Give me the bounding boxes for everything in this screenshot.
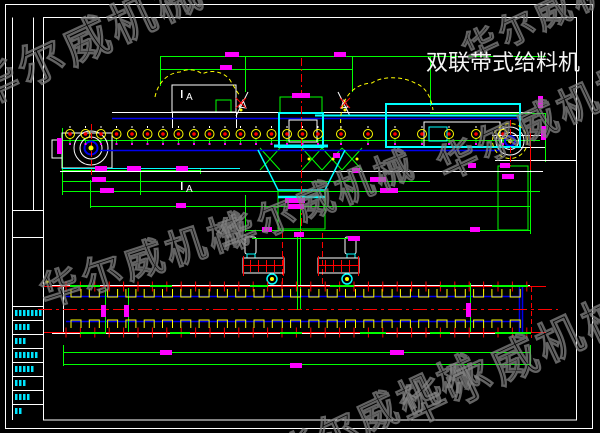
dimension-text-mark-vertical bbox=[466, 303, 471, 317]
title-strip-text-mark bbox=[15, 352, 18, 358]
title-strip-text-mark bbox=[27, 324, 30, 330]
roller-mark bbox=[147, 143, 149, 145]
dimension-text-mark bbox=[333, 153, 340, 158]
title-strip-text-mark bbox=[39, 310, 42, 316]
roller-axle-icon bbox=[239, 132, 243, 136]
dimension-text-mark bbox=[390, 350, 404, 355]
roller-mark bbox=[131, 143, 133, 145]
roller-mark bbox=[162, 143, 164, 145]
section-mark-tick-2 bbox=[181, 182, 183, 190]
roller-mark bbox=[116, 143, 118, 145]
watermark-text: 华尔威机械 bbox=[0, 0, 213, 117]
roller-mark bbox=[340, 143, 342, 145]
roller-axle-icon bbox=[316, 132, 320, 136]
watermark-text: 华尔威机械 bbox=[35, 206, 258, 316]
dimension-text-mark bbox=[502, 174, 514, 179]
plan-edge-dash bbox=[170, 332, 190, 334]
title-strip-text-mark bbox=[15, 408, 18, 414]
dimension-text-mark bbox=[100, 188, 114, 193]
dimension-text-mark bbox=[290, 363, 302, 368]
roller-mark bbox=[394, 143, 396, 145]
title-strip-text-mark bbox=[31, 352, 34, 358]
title-strip-text-mark bbox=[15, 338, 18, 344]
title-strip-text-mark bbox=[19, 380, 22, 386]
title-strip-text-mark bbox=[15, 310, 18, 316]
drawing-title: 双联带式给料机 bbox=[426, 50, 580, 75]
left-small-box bbox=[216, 100, 231, 112]
roller-mark bbox=[271, 143, 273, 145]
roller-mark bbox=[367, 143, 369, 145]
title-strip-text-mark bbox=[27, 394, 30, 400]
roller-axle-icon bbox=[285, 132, 289, 136]
title-strip-text-mark bbox=[15, 394, 18, 400]
roller-axle-icon bbox=[366, 132, 370, 136]
section-marks: A A bbox=[181, 90, 193, 195]
title-strip-text-mark bbox=[27, 310, 30, 316]
roller-mark bbox=[240, 143, 242, 145]
roller-mark bbox=[317, 143, 319, 145]
roller-mark bbox=[85, 143, 87, 145]
roller-axle-icon bbox=[254, 132, 258, 136]
plan-edge-dash bbox=[150, 285, 172, 287]
roller-mark bbox=[193, 143, 195, 145]
roller-axle-icon bbox=[115, 132, 119, 136]
roller-axle-icon bbox=[177, 132, 181, 136]
dimension-text-mark bbox=[127, 166, 141, 171]
dimension-text-mark bbox=[470, 227, 480, 232]
roller-axle-icon bbox=[130, 132, 134, 136]
title-strip-text-mark bbox=[23, 394, 26, 400]
dimension-text-mark bbox=[292, 93, 310, 98]
dimension-text-mark-vertical bbox=[124, 305, 129, 317]
plan-edge-dash bbox=[330, 285, 354, 287]
dimension-text-mark-vertical bbox=[57, 138, 62, 154]
roller-mark bbox=[178, 143, 180, 145]
plan-edge-dash bbox=[360, 332, 386, 334]
title-strip-text-mark bbox=[19, 324, 22, 330]
left-hopper-box bbox=[172, 85, 236, 112]
roller-axle-icon bbox=[223, 132, 227, 136]
title-strip-text-mark bbox=[15, 380, 18, 386]
roller-mark bbox=[209, 143, 211, 145]
roller-axle-icon bbox=[192, 132, 196, 136]
dimension-text-mark bbox=[348, 236, 360, 241]
title-strip-text-mark bbox=[23, 380, 26, 386]
dimension-text-mark bbox=[92, 177, 106, 182]
title-strip-text-mark bbox=[35, 352, 38, 358]
section-label-a1: A bbox=[186, 92, 193, 103]
title-strip-text-mark bbox=[23, 338, 26, 344]
roller-mark bbox=[302, 143, 304, 145]
cad-viewport: 华尔威机械华尔威机械华尔威机械华尔威机械华尔威机械华尔威机械华尔威机械 双联带式… bbox=[0, 0, 600, 433]
left-material-blob bbox=[155, 70, 240, 97]
dimension-text-mark bbox=[334, 52, 346, 57]
roller-mark bbox=[100, 143, 102, 145]
dimension-text-mark bbox=[160, 350, 172, 355]
cad-drawing: 华尔威机械华尔威机械华尔威机械华尔威机械华尔威机械华尔威机械华尔威机械 双联带式… bbox=[0, 0, 600, 433]
dimension-text-mark-vertical bbox=[101, 305, 106, 317]
roller-axle-icon bbox=[84, 132, 88, 136]
plan-edge-dash bbox=[440, 285, 470, 287]
section-label-a2: A bbox=[186, 184, 193, 195]
plan-edge-dash bbox=[280, 332, 302, 334]
roller-axle-icon bbox=[208, 132, 212, 136]
title-strip-text-mark bbox=[27, 366, 30, 372]
dimension-text-mark bbox=[225, 52, 239, 57]
plan-edge-dash bbox=[430, 332, 450, 334]
roller-mark bbox=[69, 143, 71, 145]
title-strip-text-mark bbox=[19, 310, 22, 316]
roller-axle-icon bbox=[68, 132, 72, 136]
title-strip-text-mark bbox=[19, 352, 22, 358]
roller-mark bbox=[255, 143, 257, 145]
roller-mark bbox=[286, 143, 288, 145]
roller-axle-icon bbox=[339, 132, 343, 136]
roller-axle-icon bbox=[161, 132, 165, 136]
dimension-text-mark bbox=[220, 65, 232, 70]
dimension-text-mark bbox=[176, 203, 186, 208]
roller-axle-icon bbox=[146, 132, 150, 136]
roller-axle-icon bbox=[301, 132, 305, 136]
roller-axle-icon bbox=[393, 132, 397, 136]
section-mark-tick-1 bbox=[181, 90, 183, 98]
title-strip-text-mark bbox=[35, 310, 38, 316]
title-strip-text-mark bbox=[23, 352, 26, 358]
title-strip-text-mark bbox=[23, 324, 26, 330]
title-strip-text-mark bbox=[31, 310, 34, 316]
title-strip-text-mark bbox=[19, 338, 22, 344]
title-strip-text-mark bbox=[31, 366, 34, 372]
roller-mark bbox=[421, 143, 423, 145]
title-strip-text-mark bbox=[15, 324, 18, 330]
title-strip-text-mark bbox=[23, 366, 26, 372]
dimension-text-mark bbox=[95, 166, 107, 171]
title-strip-text-mark bbox=[19, 408, 22, 414]
plan-edge-dash bbox=[250, 285, 268, 287]
title-strip-text-mark bbox=[19, 394, 22, 400]
plan-edge-dash bbox=[80, 332, 106, 334]
plan-edge-dash bbox=[492, 285, 528, 287]
title-strip-text-mark bbox=[15, 366, 18, 372]
title-strip-text-mark bbox=[23, 310, 26, 316]
roller-axle-icon bbox=[270, 132, 274, 136]
dimension-text-mark bbox=[176, 166, 188, 171]
roller-axle-icon bbox=[99, 132, 103, 136]
roller-axle-icon bbox=[447, 132, 451, 136]
title-strip-text-mark bbox=[27, 352, 30, 358]
title-strip-text-mark bbox=[19, 366, 22, 372]
roller-mark bbox=[224, 143, 226, 145]
roller-axle-icon bbox=[420, 132, 424, 136]
